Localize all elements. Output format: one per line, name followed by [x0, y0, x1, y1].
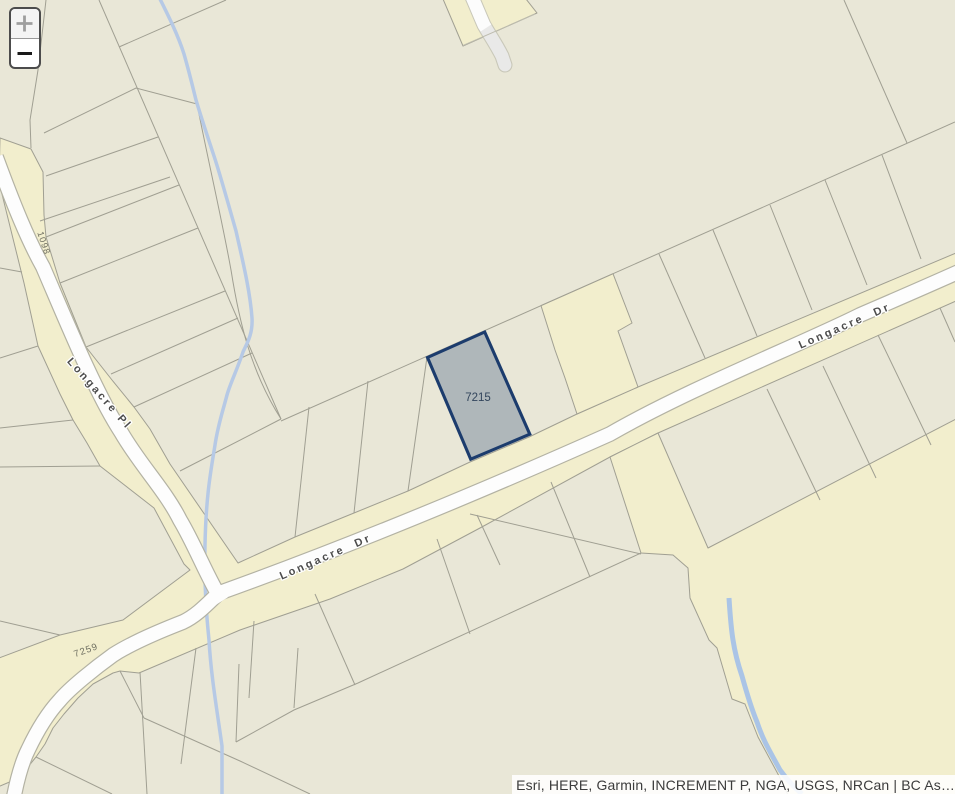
- svg-text:7215: 7215: [465, 392, 491, 404]
